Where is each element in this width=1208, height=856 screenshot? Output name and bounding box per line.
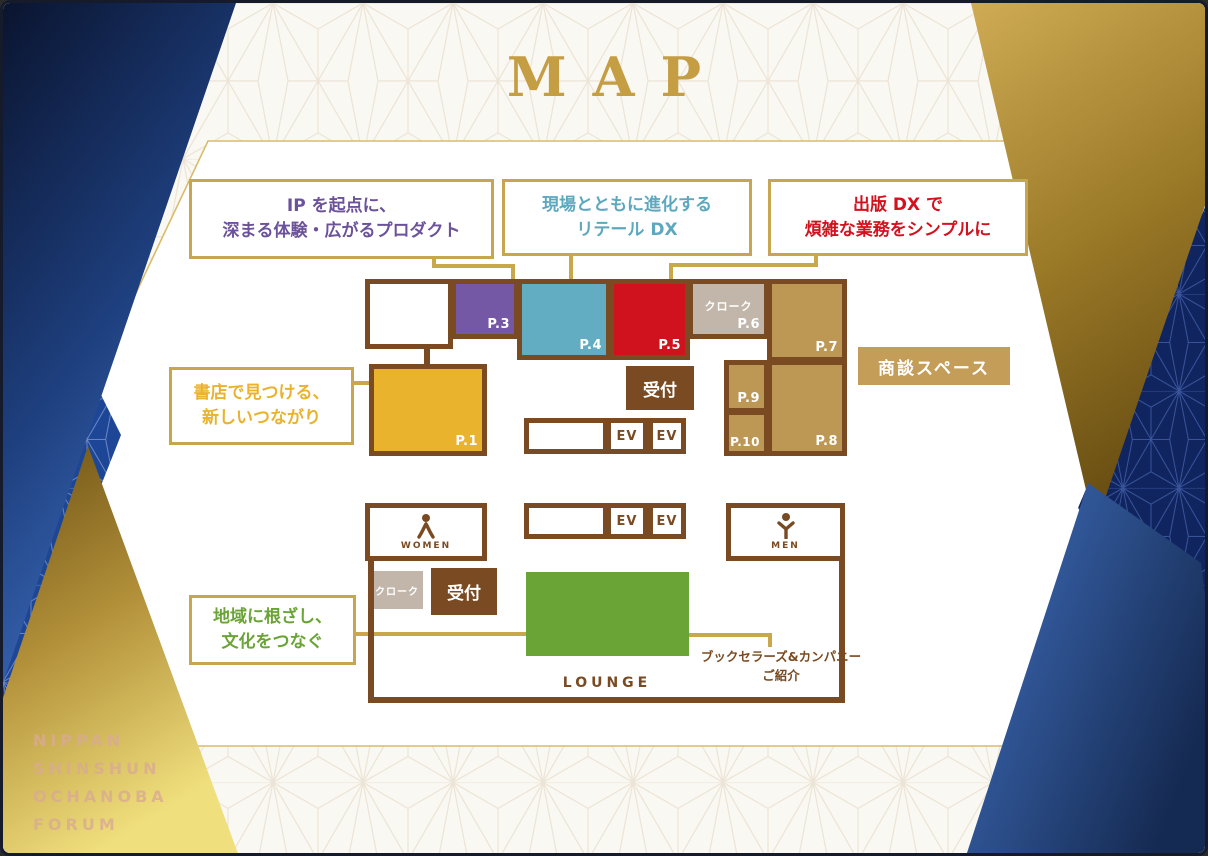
connector-region [355, 632, 543, 636]
meeting-space: 商談スペース [858, 347, 1010, 385]
booth-label-p8: P.8 [815, 434, 838, 449]
booth-p10: P.10 [724, 410, 769, 456]
reception-upper: 受付 [626, 366, 694, 410]
men-icon [775, 513, 797, 539]
branding-line: FORUM [33, 811, 168, 839]
page-title: MAP [3, 45, 1205, 109]
booth-p4: P.4 [517, 279, 611, 360]
reception-label: 受付 [447, 579, 481, 604]
callout-dx-line1: 出版 DX で [853, 193, 943, 218]
ev-label: EV [617, 429, 638, 444]
booksellers-line1: ブックセラーズ&カンパニー [661, 647, 901, 666]
forum-branding: NIPPAN SHINSHUN OCHANOBA FORUM [33, 727, 168, 839]
branding-line: NIPPAN [33, 727, 168, 755]
callout-region-line2: 文化をつなぐ [222, 630, 324, 655]
booksellers-line2: ご紹介 [661, 666, 901, 685]
booth-label-p9: P.9 [737, 391, 760, 406]
ev-label: EV [617, 514, 638, 529]
elevator-lower-2: EV [648, 503, 686, 539]
branding-line: OCHANOBA [33, 783, 168, 811]
ev-hall-lower [524, 503, 608, 539]
lounge-wall-bottom [368, 697, 845, 703]
callout-region: 地域に根ざし、 文化をつなぐ [189, 595, 356, 665]
lounge-label: LOUNGE [521, 675, 693, 691]
callout-publish-dx: 出版 DX で 煩雑な業務をシンプルに [768, 179, 1028, 256]
lounge-wall-left [368, 560, 374, 703]
branding-line: SHINSHUN [33, 755, 168, 783]
booth-p1: P.1 [369, 364, 487, 456]
cloak-label: クローク [693, 298, 764, 314]
women-icon [415, 513, 437, 539]
connector-ip [432, 264, 515, 268]
callout-region-line1: 地域に根ざし、 [213, 605, 332, 630]
booth-p9: P.9 [724, 360, 769, 413]
meeting-space-label: 商談スペース [878, 354, 990, 379]
callout-ip-line2: 深まる体験・広がるプロダクト [223, 219, 461, 244]
map-page: MAP NIPPAN SHINSHUN OCHANOBA FORUM IP を起… [0, 0, 1208, 856]
booth-p7: P.7 [767, 279, 847, 362]
callout-bookstore-line2: 新しいつながり [202, 406, 321, 431]
connector-booksellers [768, 633, 772, 647]
booth-label-p4: P.4 [579, 338, 602, 353]
women-label: WOMEN [401, 541, 451, 551]
booth-p3: P.3 [451, 279, 519, 339]
connector-publish [669, 263, 818, 267]
callout-dx-line2: 煩雑な業務をシンプルに [805, 218, 992, 243]
elevator-upper-1: EV [606, 418, 648, 454]
ev-label: EV [657, 514, 678, 529]
cloak-label: クローク [375, 583, 419, 598]
reception-label: 受付 [643, 376, 677, 401]
booth-label-p1: P.1 [455, 434, 478, 449]
callout-bookstore: 書店で見つける、 新しいつながり [169, 367, 354, 445]
restroom-men: MEN [726, 503, 845, 561]
booth-p5: P.5 [609, 279, 690, 360]
booth-label-p5: P.5 [658, 338, 681, 353]
reception-lower: 受付 [431, 568, 497, 615]
booth-p6-cloak: クローク P.6 [688, 279, 769, 339]
lounge-wall-right [839, 560, 845, 703]
callout-bookstore-line1: 書店で見つける、 [194, 381, 330, 406]
booth-label-p6: P.6 [737, 317, 760, 332]
callout-retail-line1: 現場とともに進化する [542, 193, 712, 218]
cloak-lower: クローク [371, 571, 423, 609]
booth-label-p3: P.3 [487, 317, 510, 332]
callout-ip: IP を起点に、 深まる体験・広がるプロダクト [189, 179, 494, 259]
lounge-stage [526, 572, 689, 656]
elevator-upper-2: EV [648, 418, 686, 454]
booth-p8: P.8 [767, 360, 847, 456]
booth-label-p10: P.10 [730, 435, 760, 449]
callout-retail-line2: リテール DX [576, 218, 677, 243]
booth-label-p7: P.7 [815, 340, 838, 355]
restroom-women: WOMEN [365, 503, 487, 561]
callout-ip-line1: IP を起点に、 [287, 194, 396, 219]
callout-booksellers: ブックセラーズ&カンパニー ご紹介 [661, 647, 901, 686]
room-unlabeled [365, 279, 453, 349]
ev-hall-upper [524, 418, 608, 454]
ev-label: EV [657, 429, 678, 444]
callout-retail-dx: 現場とともに進化する リテール DX [502, 179, 752, 256]
elevator-lower-1: EV [606, 503, 648, 539]
men-label: MEN [771, 541, 800, 551]
